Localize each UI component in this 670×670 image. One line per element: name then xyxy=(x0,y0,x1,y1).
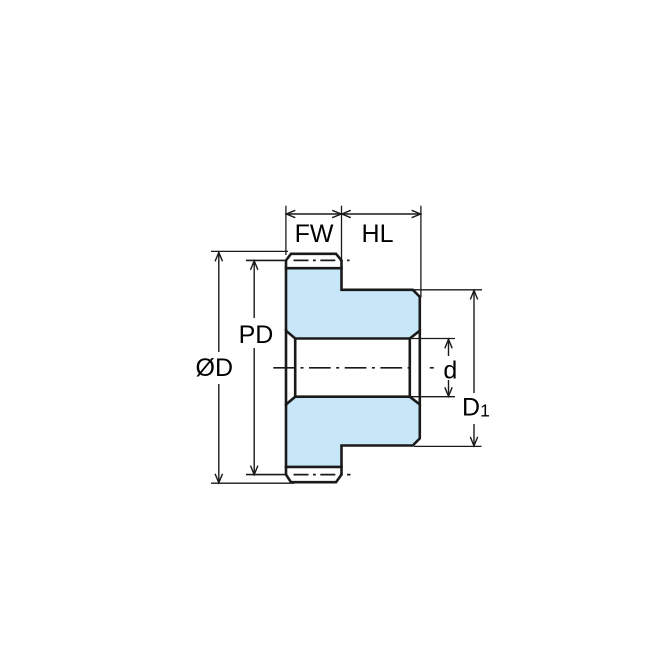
svg-text:d: d xyxy=(443,356,457,384)
svg-text:FW: FW xyxy=(295,220,334,248)
svg-text:HL: HL xyxy=(362,220,394,248)
svg-text:PD: PD xyxy=(239,321,274,349)
svg-text:ØD: ØD xyxy=(196,354,234,382)
